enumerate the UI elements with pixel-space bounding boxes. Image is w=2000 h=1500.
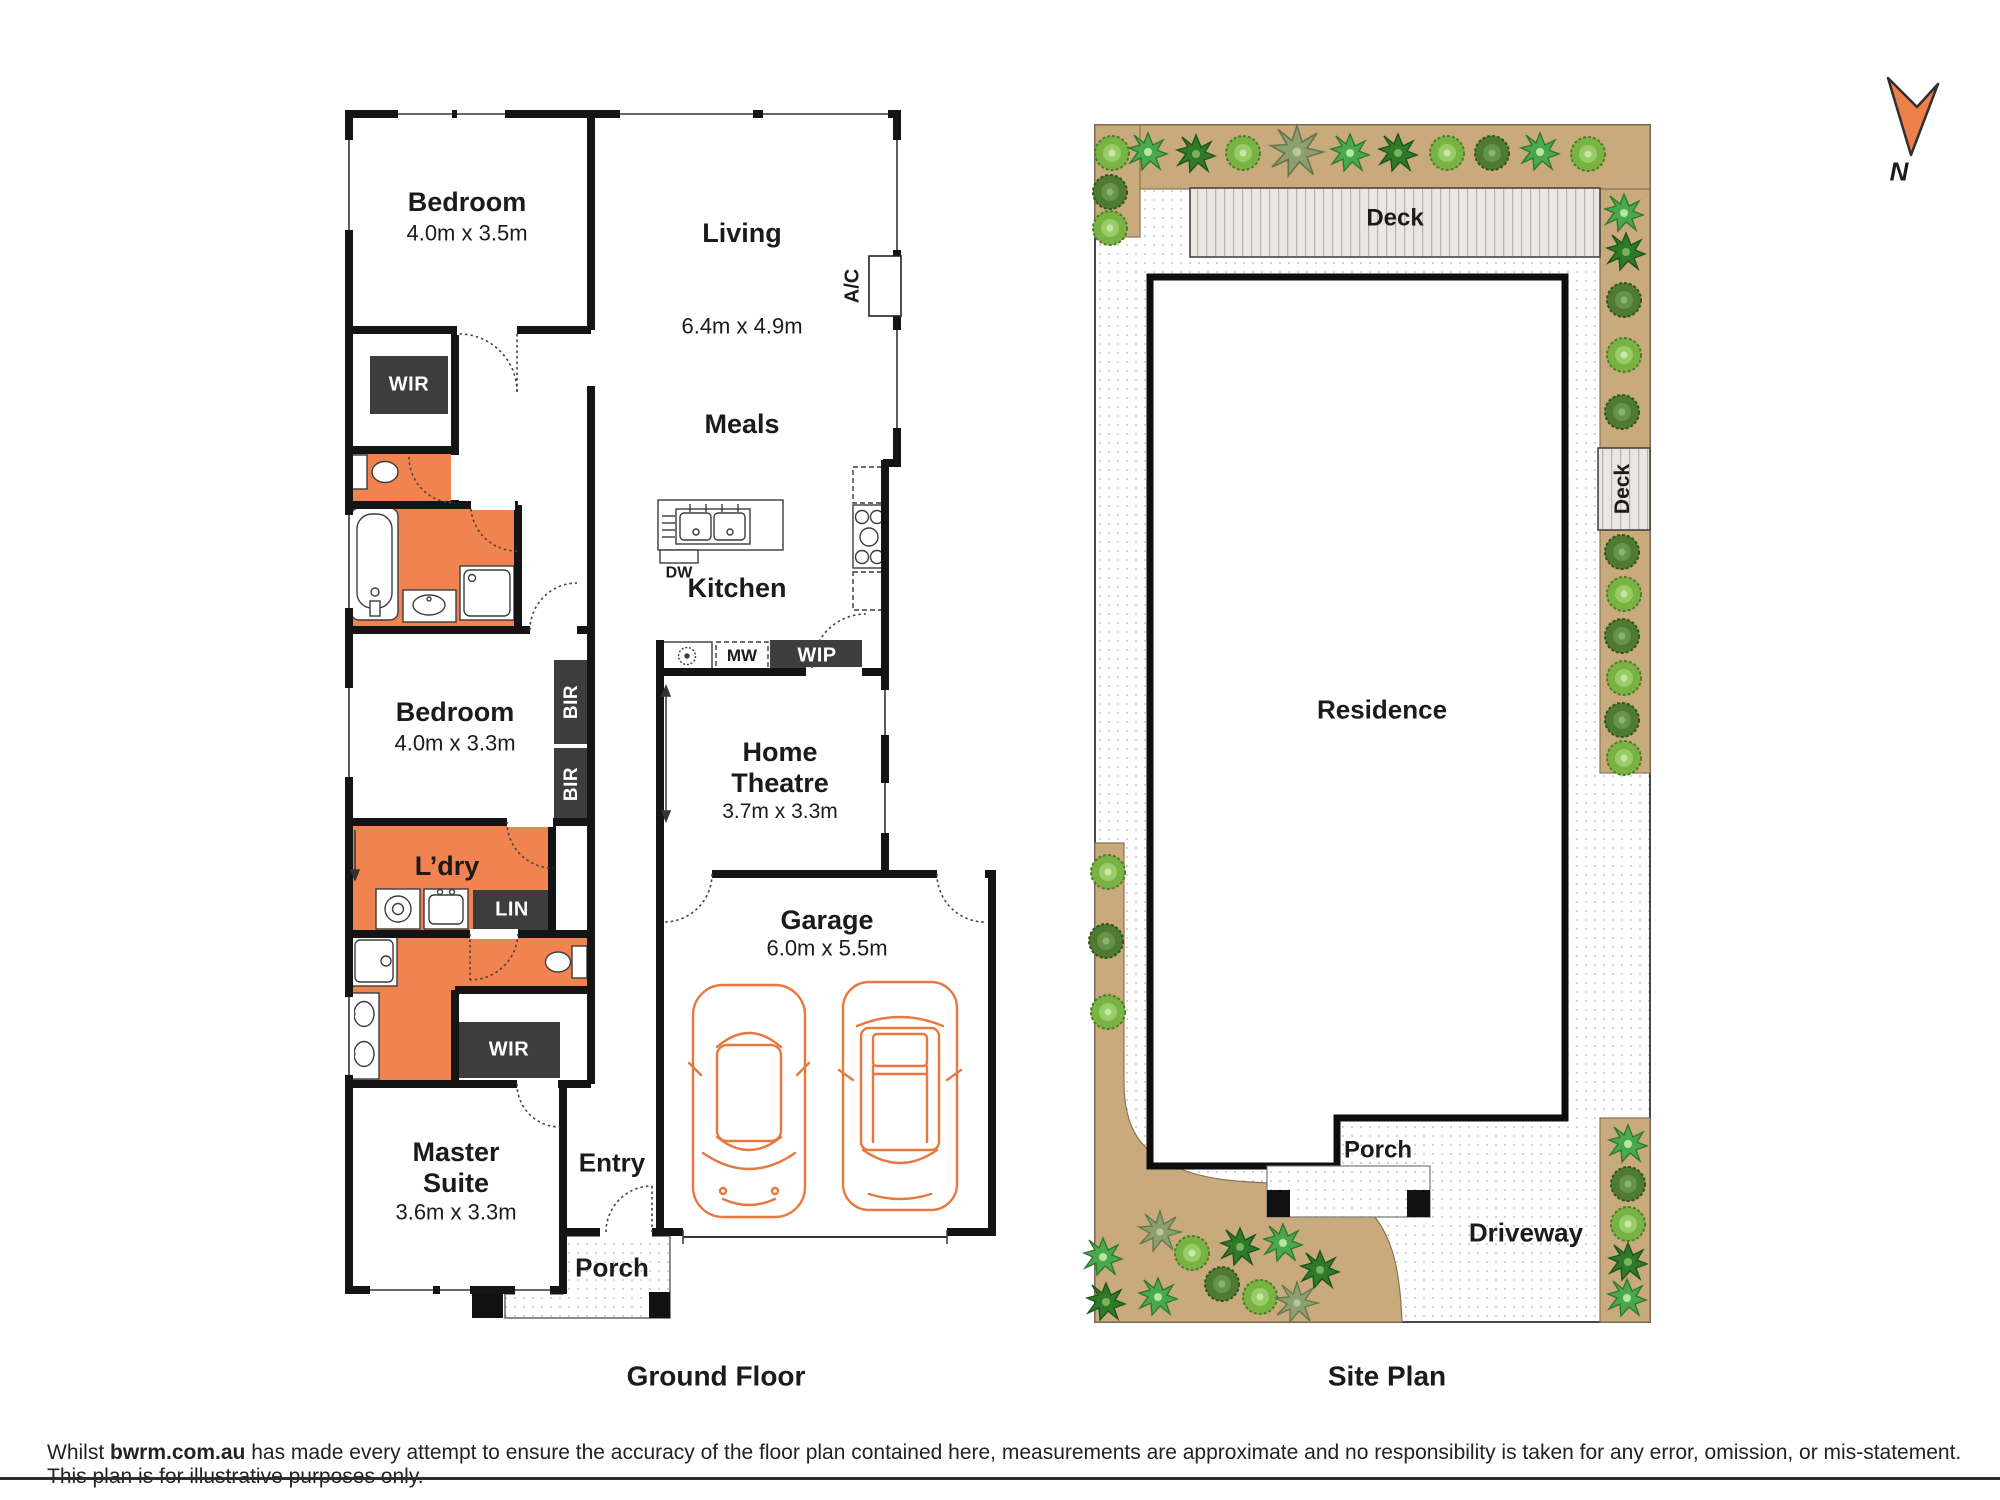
kitchen-label: Kitchen — [687, 574, 786, 602]
garage-label: Garage — [780, 906, 873, 934]
bedroom2-label: Bedroom — [396, 698, 515, 726]
cars — [689, 982, 961, 1217]
disclaimer-prefix: Whilst — [47, 1441, 104, 1464]
meals-label: Meals — [704, 410, 779, 438]
residence-label: Residence — [1317, 696, 1447, 723]
microwave-label: MW — [727, 647, 757, 665]
car-suv-icon — [839, 982, 961, 1210]
deck-side-label: Deck — [1612, 464, 1634, 514]
footer-divider — [0, 1477, 2000, 1480]
home-theatre-dims: 3.7m x 3.3m — [722, 801, 838, 823]
ensuite-toilet-icon — [572, 946, 587, 978]
wir1-label: WIR — [389, 375, 429, 396]
lin-label: LIN — [495, 900, 529, 921]
garage-dims: 6.0m x 5.5m — [766, 936, 887, 959]
floorplan-page: Bedroom 4.0m x 3.5m Living 6.4m x 4.9m M… — [0, 0, 2000, 1500]
toilet-icon — [352, 455, 367, 489]
bedroom2-dims: 4.0m x 3.3m — [394, 731, 515, 754]
disclaimer: Whilst bwrm.com.au has made every attemp… — [47, 1441, 2000, 1489]
pantry-cabinet — [853, 467, 885, 503]
site-porch-slab — [1267, 1166, 1430, 1217]
ac-unit — [869, 256, 901, 316]
master-suite-label-1: Master — [412, 1138, 499, 1166]
entry-label: Entry — [579, 1149, 645, 1176]
laundry-label: L’dry — [415, 852, 480, 880]
dishwasher-label: DW — [666, 566, 693, 583]
living-label: Living — [702, 219, 782, 247]
porch-pier-left — [472, 1290, 503, 1318]
master-suite-dims: 3.6m x 3.3m — [395, 1200, 516, 1223]
ac-label: A/C — [843, 269, 864, 303]
porch-pier-right — [649, 1292, 670, 1318]
ground-floor-title: Ground Floor — [627, 1361, 806, 1390]
wir2-label: WIR — [489, 1040, 529, 1061]
north-arrow-icon — [1888, 78, 1938, 155]
porch-label: Porch — [575, 1254, 649, 1281]
disclaimer-text: has made every attempt to ensure the acc… — [47, 1441, 1961, 1488]
car-sedan-icon — [689, 985, 809, 1217]
dishwasher-icon — [660, 550, 698, 563]
driveway-label: Driveway — [1469, 1219, 1583, 1246]
plan-graphics — [0, 0, 2000, 1500]
living-dims: 6.4m x 4.9m — [681, 314, 802, 337]
bir1-label: BIR — [562, 685, 582, 719]
bedroom1-label: Bedroom — [408, 188, 527, 216]
bedroom1-dims: 4.0m x 3.5m — [406, 221, 527, 244]
north-label: N — [1890, 158, 1909, 185]
home-theatre-label-2: Theatre — [731, 769, 829, 797]
door-arcs — [409, 334, 985, 1232]
home-theatre-label-1: Home — [742, 738, 817, 766]
site-plan-title: Site Plan — [1328, 1361, 1446, 1390]
bir2-label: BIR — [562, 767, 582, 801]
deck-top-label: Deck — [1366, 205, 1423, 230]
disclaimer-brand: bwrm.com.au — [110, 1441, 245, 1464]
wip-label: WIP — [797, 646, 836, 667]
master-suite-label-2: Suite — [423, 1169, 489, 1197]
site-porch-label: Porch — [1344, 1137, 1412, 1162]
pantry-cabinet — [853, 572, 885, 610]
